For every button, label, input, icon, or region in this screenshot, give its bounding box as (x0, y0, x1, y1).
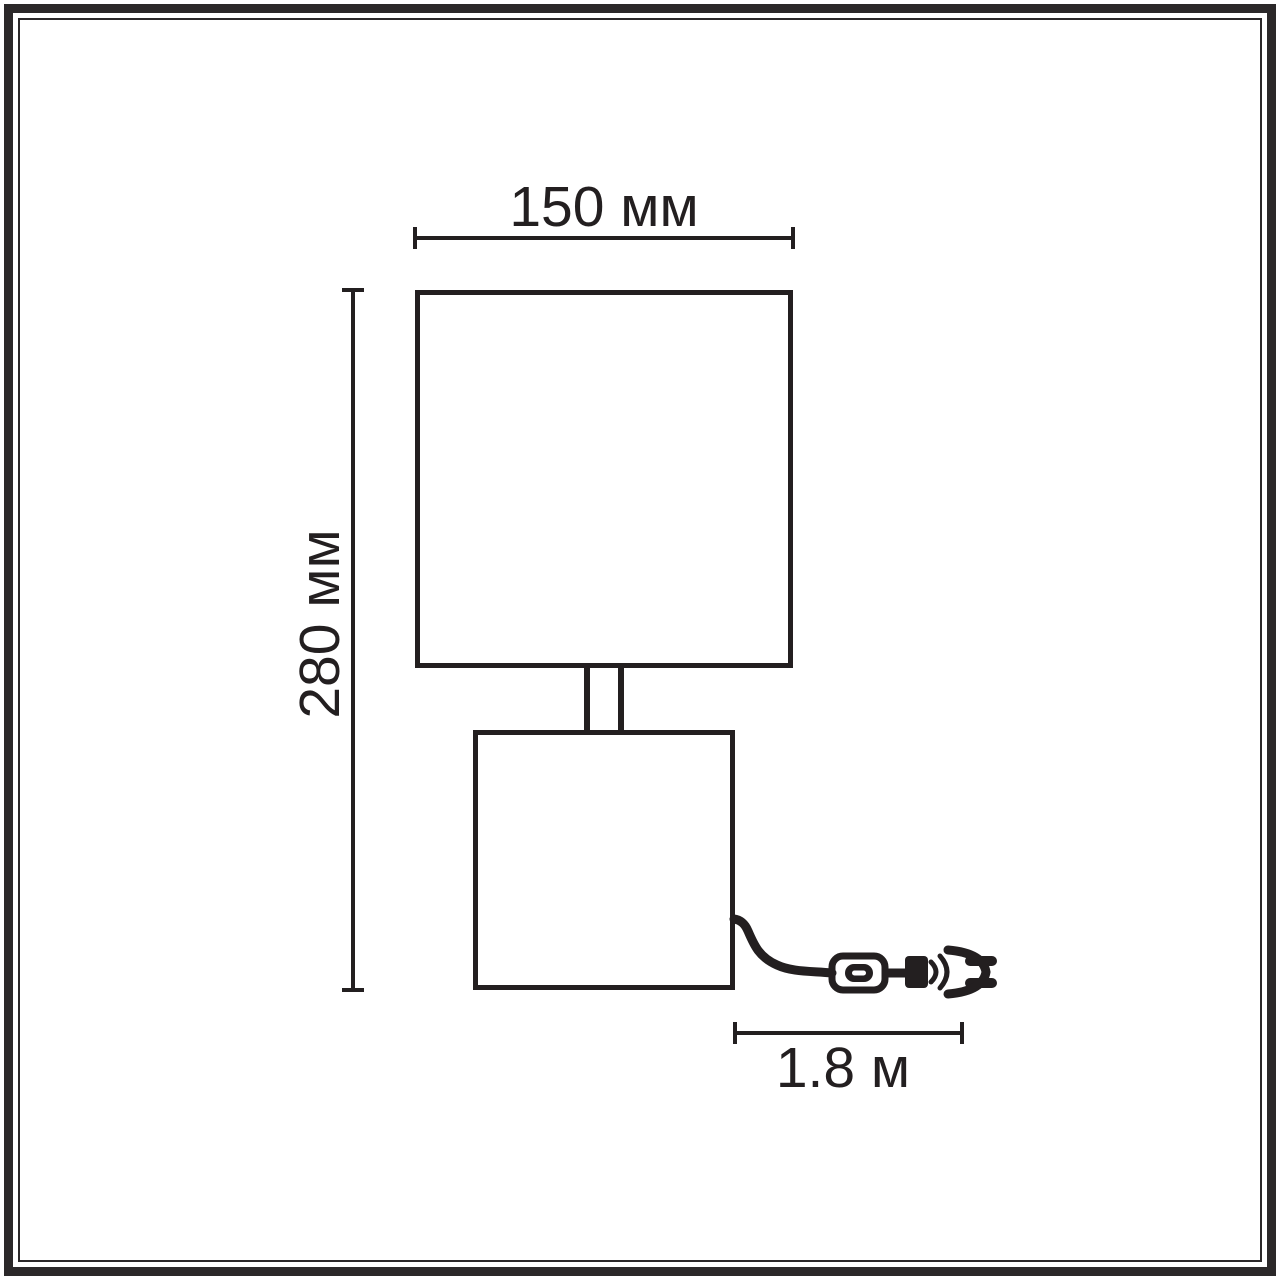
power-cable-icon (734, 919, 832, 973)
power-plug-icon (905, 950, 997, 994)
lamp-base-icon (476, 733, 733, 988)
width-dimension-label: 150 мм (509, 175, 698, 239)
lamp-stem-icon (587, 668, 621, 732)
lamp-dimension-diagram: 150 мм 280 мм 1.8 м (0, 0, 1280, 1280)
height-dimension-label: 280 мм (288, 529, 352, 718)
dimension-diagram-page: 150 мм 280 мм 1.8 м (0, 0, 1280, 1280)
cable-length-label: 1.8 м (776, 1036, 910, 1100)
inline-switch-icon (832, 956, 885, 990)
lamp-shade-icon (418, 293, 791, 666)
